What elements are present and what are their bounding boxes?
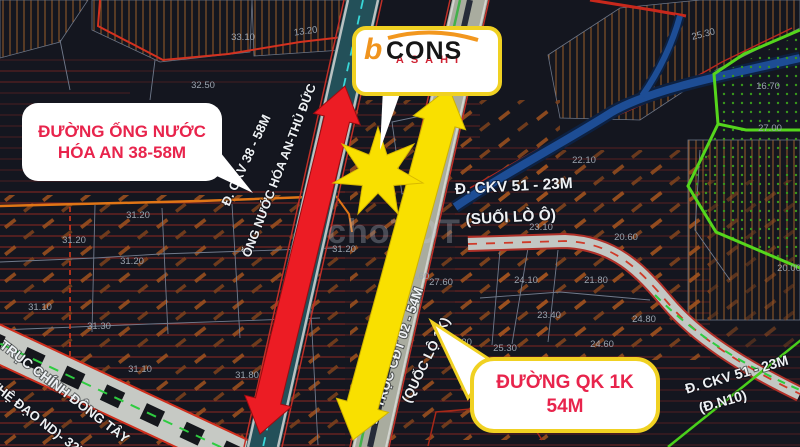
parcel-number: 31.80 bbox=[235, 370, 259, 381]
parcel-number: 24.10 bbox=[514, 275, 538, 286]
parcel-number: 27.60 bbox=[429, 277, 453, 288]
parcel-number: 27.00 bbox=[758, 123, 782, 134]
parcel-number: 31.20 bbox=[120, 256, 144, 267]
parcel-number: 21.80 bbox=[584, 275, 608, 286]
parcel-number: 24.80 bbox=[632, 314, 656, 325]
logo-b: b bbox=[364, 33, 382, 64]
parcel-number: 24.60 bbox=[590, 339, 614, 350]
qk-callout: ĐƯỜNG QK 1K 54M bbox=[470, 357, 660, 433]
qk-callout-line1: ĐƯỜNG QK 1K bbox=[496, 371, 634, 395]
qk-callout-line2: 54M bbox=[547, 395, 584, 419]
parcel-number: 31.10 bbox=[128, 364, 152, 375]
parcel-number: 32.50 bbox=[191, 80, 215, 91]
parcel-number: 25.30 bbox=[493, 343, 517, 354]
pipe-callout: ĐƯỜNG ỐNG NƯỚC HÓA AN 38-58M bbox=[22, 103, 222, 181]
pipe-callout-line2: HÓA AN 38-58M bbox=[58, 142, 186, 163]
parcel-number: 20.00 bbox=[777, 263, 800, 274]
parcel-number: 16.70 bbox=[756, 81, 780, 92]
parcel-number: 23.40 bbox=[537, 310, 561, 321]
parcel-number: 33.10 bbox=[231, 32, 255, 43]
parcel-number: 31.10 bbox=[28, 302, 52, 313]
planning-map: 33.1013.2032.5031.2031.2031.2031.1031.30… bbox=[0, 0, 800, 447]
logo-cons: CONS bbox=[386, 37, 462, 64]
bcons-asahi-logo: b CONS ASAHI bbox=[352, 26, 502, 96]
parcel-number: 31.20 bbox=[62, 235, 86, 246]
logo-art: b CONS bbox=[356, 30, 484, 64]
parcel-number: 31.20 bbox=[126, 210, 150, 221]
parcel-number: 22.10 bbox=[572, 155, 596, 166]
parcel-number: 20.60 bbox=[614, 232, 638, 243]
parcel-number: 31.30 bbox=[87, 321, 111, 332]
pipe-callout-line1: ĐƯỜNG ỐNG NƯỚC bbox=[38, 121, 206, 142]
